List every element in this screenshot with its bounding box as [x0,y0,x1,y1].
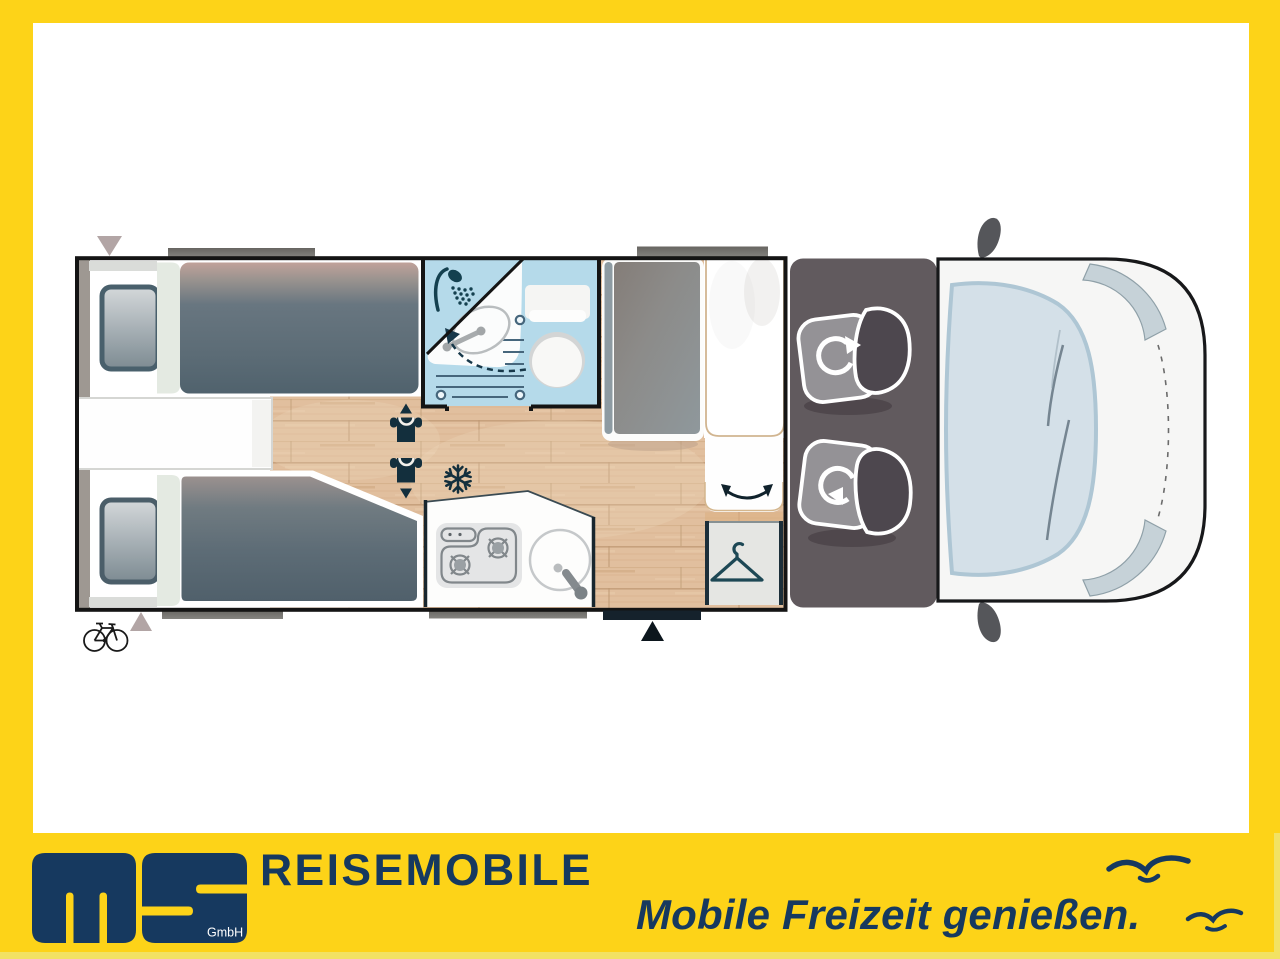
svg-text:REISEMOBILE: REISEMOBILE [260,846,593,895]
svg-text:GmbH: GmbH [207,926,243,940]
svg-text:Mobile Freizeit genießen.: Mobile Freizeit genießen. [636,891,1140,938]
